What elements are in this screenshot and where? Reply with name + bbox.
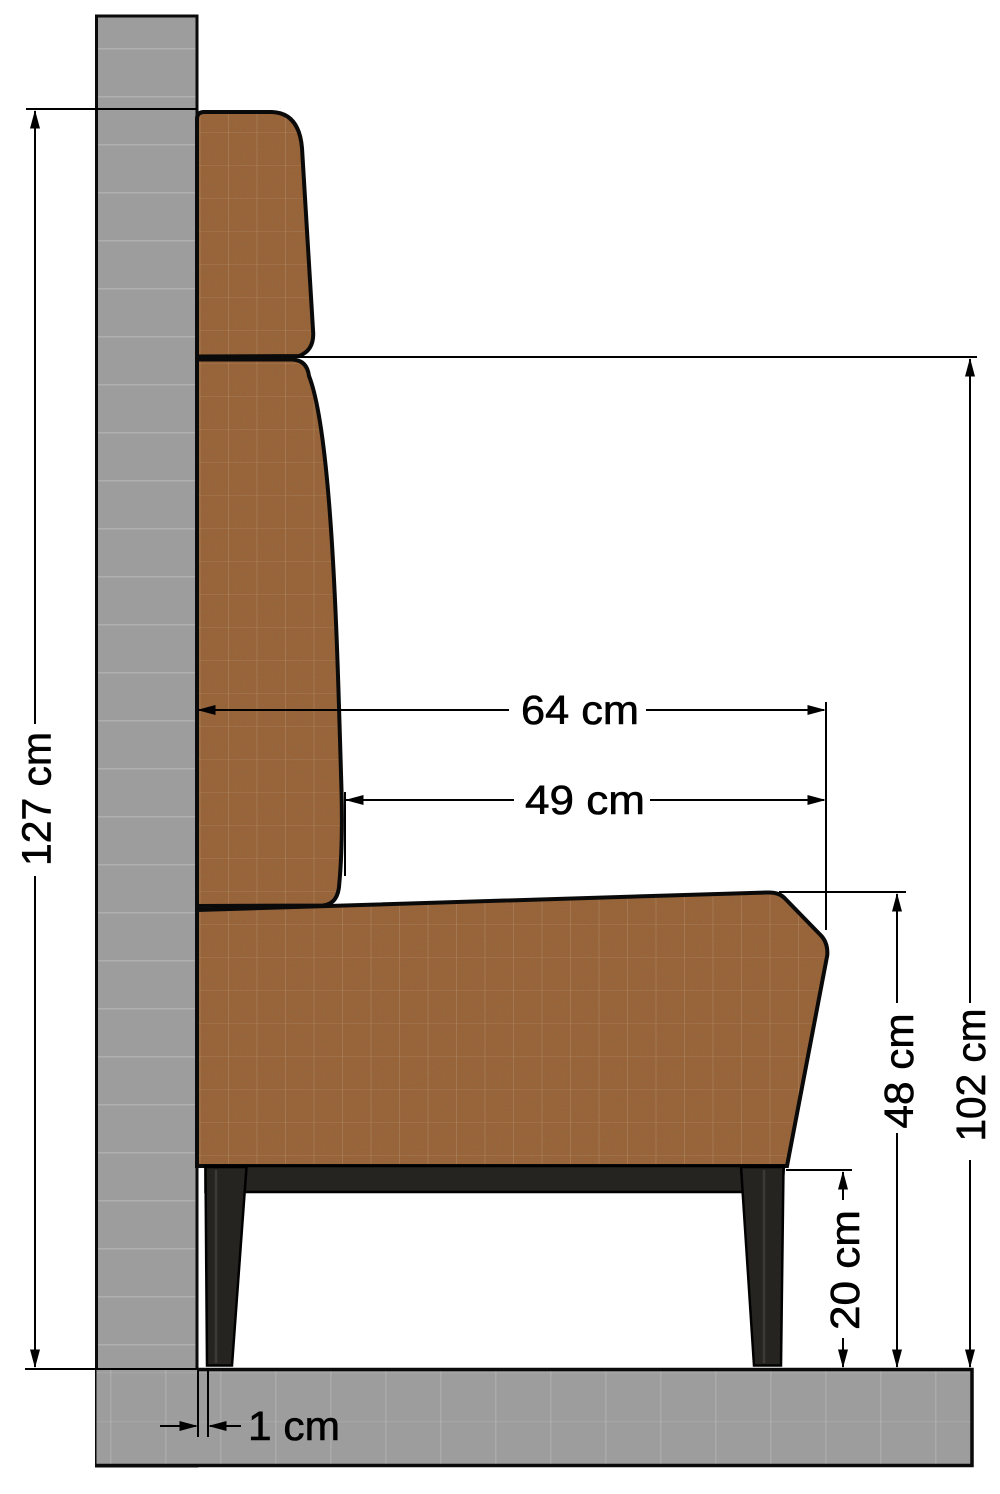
svg-text:127 cm: 127 cm	[14, 732, 60, 866]
svg-text:64 cm: 64 cm	[521, 687, 639, 733]
svg-text:20 cm: 20 cm	[822, 1210, 868, 1330]
svg-text:1 cm: 1 cm	[248, 1403, 340, 1449]
svg-text:48 cm: 48 cm	[876, 1014, 922, 1129]
svg-text:102 cm: 102 cm	[948, 1009, 994, 1142]
svg-text:49 cm: 49 cm	[525, 777, 645, 823]
